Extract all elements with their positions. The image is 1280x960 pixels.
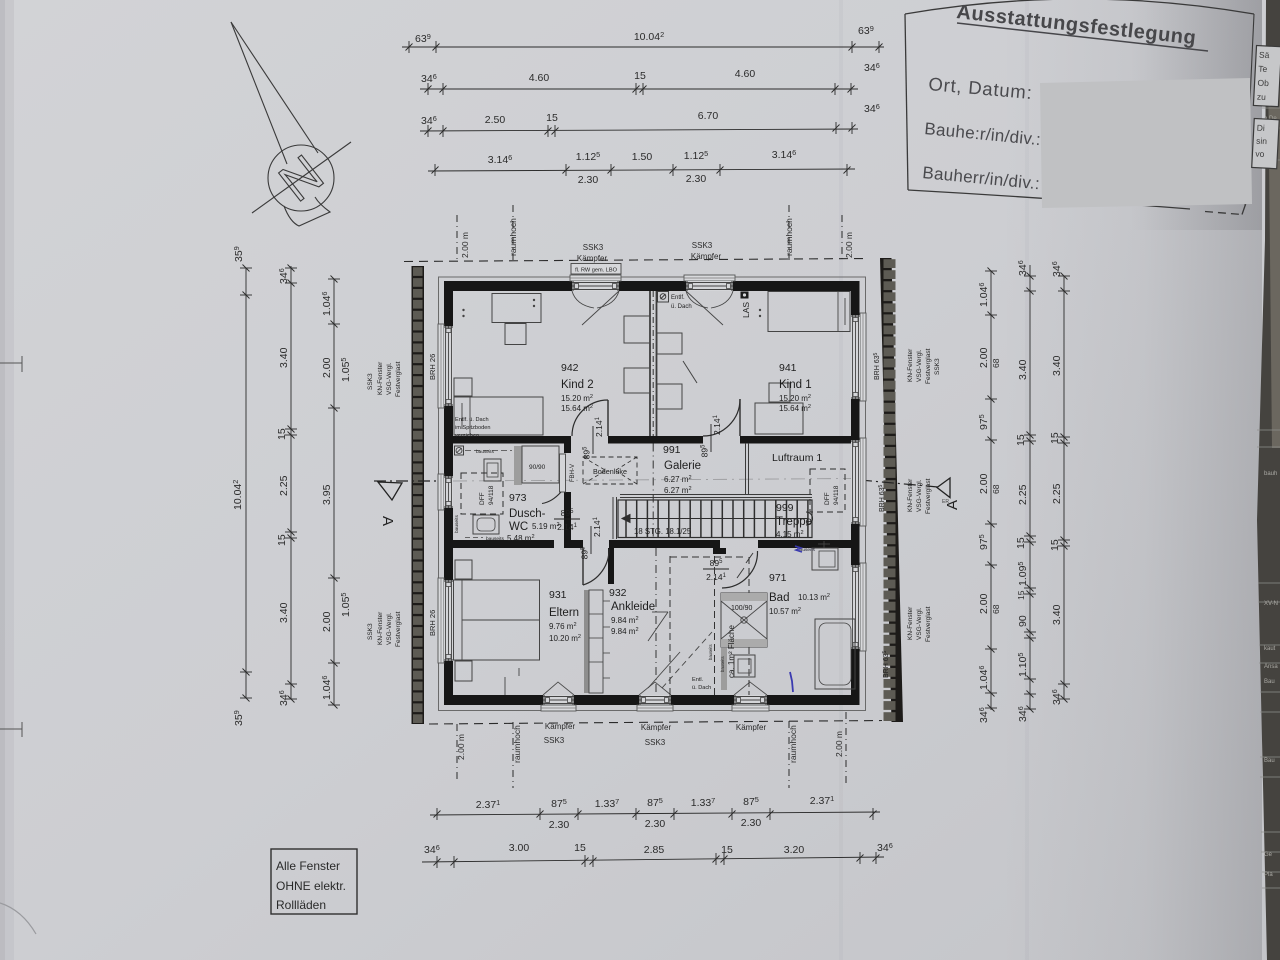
svg-text:Entl.: Entl. [692, 677, 704, 683]
svg-text:Bau: Bau [1264, 679, 1275, 685]
svg-text:15.64 m2: 15.64 m2 [561, 404, 593, 413]
svg-text:18 STG. 18.1/25: 18 STG. 18.1/25 [634, 527, 692, 536]
svg-text:Eltern: Eltern [549, 607, 579, 619]
svg-text:BRH 635: BRH 635 [878, 484, 886, 512]
svg-text:15: 15 [1016, 590, 1026, 600]
svg-text:2.00: 2.00 [978, 593, 990, 614]
svg-text:ü. Dach: ü. Dach [692, 685, 711, 691]
svg-text:4.60: 4.60 [735, 68, 756, 80]
svg-text:2.00: 2.00 [321, 357, 333, 378]
svg-text:3.40: 3.40 [1017, 359, 1029, 380]
svg-text:Festverglast: Festverglast [395, 361, 402, 397]
svg-text:SSK3: SSK3 [583, 243, 604, 252]
svg-text:2.00 m: 2.00 m [834, 731, 844, 757]
svg-text:932: 932 [609, 587, 627, 599]
svg-text:9.76 m2: 9.76 m2 [549, 622, 577, 631]
svg-text:A: A [379, 516, 396, 526]
svg-text:im Spitzboden: im Spitzboden [455, 425, 490, 431]
svg-text:942: 942 [561, 362, 579, 374]
svg-text:2.30: 2.30 [686, 173, 707, 185]
svg-text:90/90: 90/90 [529, 464, 546, 471]
svg-text:VSG-Vergl.: VSG-Vergl. [916, 607, 923, 640]
svg-text:2.85: 2.85 [644, 844, 665, 856]
svg-text:2.30: 2.30 [578, 174, 599, 186]
svg-text:2.25: 2.25 [1051, 483, 1063, 504]
svg-text:931: 931 [549, 589, 567, 601]
svg-text:Ob: Ob [1257, 78, 1269, 89]
svg-text:2.00: 2.00 [978, 473, 990, 494]
svg-text:Ge: Ge [1264, 852, 1273, 858]
svg-text:3.00: 3.00 [509, 842, 530, 854]
svg-text:Festverglast: Festverglast [925, 348, 932, 384]
svg-text:bauseits: bauseits [476, 449, 494, 455]
svg-text:15: 15 [546, 112, 558, 124]
svg-text:Entlf. ü. Dach: Entlf. ü. Dach [455, 417, 489, 423]
svg-text:KN-Fenster: KN-Fenster [907, 606, 914, 640]
svg-text:15.20 m2: 15.20 m2 [561, 394, 593, 403]
svg-text:Festverglast: Festverglast [395, 611, 402, 647]
svg-text:991: 991 [663, 444, 681, 456]
svg-text:VSG-Vergl.: VSG-Vergl. [916, 349, 923, 382]
svg-text:raumhoch: raumhoch [512, 725, 522, 763]
svg-text:15: 15 [721, 844, 733, 856]
svg-text:100/90: 100/90 [731, 605, 753, 612]
svg-text:SSK3: SSK3 [934, 358, 941, 375]
svg-text:Kind 2: Kind 2 [561, 379, 594, 391]
svg-text:68: 68 [991, 358, 1001, 368]
svg-text:4.15 m2: 4.15 m2 [776, 530, 804, 539]
svg-text:sin: sin [1256, 136, 1268, 147]
svg-text:Luftraum 1: Luftraum 1 [772, 452, 822, 464]
svg-text:10.13 m2: 10.13 m2 [798, 593, 830, 602]
svg-text:Rollläden: Rollläden [276, 898, 326, 912]
svg-text:2.25: 2.25 [1017, 484, 1029, 505]
svg-text:raumhoch: raumhoch [784, 218, 794, 256]
svg-text:BRH 635: BRH 635 [873, 352, 881, 380]
svg-text:Te: Te [1258, 64, 1268, 74]
svg-text:10.042: 10.042 [634, 30, 664, 43]
svg-text:6.27 m2: 6.27 m2 [664, 486, 692, 495]
svg-text:2.00 m: 2.00 m [456, 734, 466, 760]
svg-text:6.27 m2: 6.27 m2 [664, 475, 692, 484]
svg-text:15: 15 [1015, 537, 1027, 549]
svg-text:BRH 26: BRH 26 [428, 354, 437, 380]
svg-text:Sä: Sä [1259, 50, 1270, 61]
svg-text:3.95: 3.95 [321, 484, 333, 505]
svg-text:SSK3: SSK3 [692, 241, 713, 250]
svg-text:2.00: 2.00 [978, 347, 990, 368]
svg-text:68: 68 [991, 484, 1001, 494]
svg-text:KN-Fenster: KN-Fenster [907, 348, 914, 382]
svg-text:fl. RW gem. LBO: fl. RW gem. LBO [575, 268, 618, 274]
svg-text:Festverglast: Festverglast [925, 478, 932, 514]
svg-text:15: 15 [574, 842, 586, 854]
svg-text:VSG-Vergl.: VSG-Vergl. [916, 479, 923, 512]
svg-text:971: 971 [769, 572, 787, 584]
svg-text:bauseits: bauseits [708, 644, 713, 660]
svg-text:Kämpfer: Kämpfer [691, 252, 722, 261]
svg-text:SSK3: SSK3 [367, 623, 374, 640]
svg-text:SSK3: SSK3 [367, 373, 374, 390]
svg-text:90: 90 [1017, 615, 1029, 627]
svg-text:15.20 m2: 15.20 m2 [779, 394, 811, 403]
svg-text:15: 15 [276, 428, 288, 440]
svg-text:LAS: LAS [741, 302, 751, 318]
svg-text:10.57 m2: 10.57 m2 [769, 607, 801, 616]
svg-text:ü. Dach: ü. Dach [671, 304, 692, 310]
svg-text:Kämpfer: Kämpfer [545, 722, 576, 731]
svg-text:Kind 1: Kind 1 [779, 379, 812, 391]
svg-text:KN-Fenster: KN-Fenster [377, 361, 384, 395]
svg-text:9.84 m2: 9.84 m2 [611, 627, 639, 636]
svg-text:3.40: 3.40 [278, 347, 290, 368]
svg-text:1.50: 1.50 [632, 151, 653, 163]
svg-text:Ansa: Ansa [1264, 664, 1278, 670]
svg-text:SSK3: SSK3 [645, 738, 666, 747]
svg-text:2.25: 2.25 [278, 475, 290, 496]
svg-text:Entlf.: Entlf. [671, 295, 685, 301]
svg-text:WC: WC [509, 521, 528, 533]
svg-text:vo: vo [1255, 149, 1265, 159]
svg-text:BRH 26: BRH 26 [428, 610, 437, 636]
svg-text:Bau: Bau [1264, 758, 1275, 764]
svg-text:9.84 m2: 9.84 m2 [611, 616, 639, 625]
svg-text:15.64 m2: 15.64 m2 [779, 404, 811, 413]
svg-text:OHNE elektr.: OHNE elektr. [276, 879, 346, 893]
svg-text:Di: Di [1257, 123, 1266, 133]
svg-text:10.042: 10.042 [231, 480, 244, 510]
svg-text:94/118: 94/118 [488, 485, 495, 505]
svg-text:4.60: 4.60 [529, 72, 550, 84]
svg-text:KN-Fenster: KN-Fenster [377, 611, 384, 645]
svg-text:15: 15 [1049, 539, 1061, 551]
svg-text:BRH 635: BRH 635 [882, 650, 890, 678]
svg-text:2.00 m: 2.00 m [460, 232, 470, 258]
svg-text:raumhoch: raumhoch [788, 725, 798, 763]
svg-text:2.30: 2.30 [645, 818, 666, 830]
svg-text:zu: zu [1257, 92, 1267, 102]
svg-text:VSG-Vergl.: VSG-Vergl. [386, 362, 393, 395]
svg-text:2.30: 2.30 [549, 819, 570, 831]
svg-text:DFF: DFF [824, 492, 831, 505]
svg-text:Alle Fenster: Alle Fenster [276, 859, 340, 873]
svg-text:DFF: DFF [479, 492, 486, 505]
svg-text:2.00 m: 2.00 m [844, 232, 854, 258]
svg-text:5.48 m2: 5.48 m2 [507, 534, 535, 543]
svg-text:XV-N: XV-N [1264, 601, 1278, 607]
svg-text:SSK3: SSK3 [544, 736, 565, 745]
svg-text:3.40: 3.40 [1051, 355, 1063, 376]
svg-text:bauseits: bauseits [454, 515, 460, 533]
svg-text:3.20: 3.20 [784, 844, 805, 856]
svg-text:15: 15 [1015, 434, 1027, 446]
svg-text:Pla: Pla [1264, 872, 1273, 878]
svg-text:bauseits: bauseits [720, 656, 725, 672]
svg-text:3.40: 3.40 [278, 602, 290, 623]
svg-text:999: 999 [776, 502, 794, 514]
svg-text:Bodenluke: Bodenluke [593, 467, 627, 476]
svg-text:3.40: 3.40 [1051, 604, 1063, 625]
svg-text:raumhoch: raumhoch [508, 218, 518, 256]
svg-text:2.50: 2.50 [485, 114, 506, 126]
svg-text:verziehen: verziehen [455, 433, 479, 439]
svg-text:ER: ER [942, 499, 949, 505]
svg-text:10.20 m2: 10.20 m2 [549, 634, 581, 643]
svg-text:Dusch-: Dusch- [509, 508, 546, 520]
svg-text:15: 15 [276, 534, 288, 546]
svg-text:FBH-V: FBH-V [570, 464, 576, 482]
svg-text:bauh: bauh [1264, 471, 1277, 477]
svg-text:ca. 1m² Fläche: ca. 1m² Fläche [727, 625, 736, 678]
svg-text:15: 15 [634, 70, 646, 82]
svg-text:973: 973 [509, 492, 527, 504]
svg-text:941: 941 [779, 362, 797, 374]
svg-text:bauseits: bauseits [486, 536, 504, 542]
svg-text:Kämpfer: Kämpfer [736, 723, 767, 732]
svg-text:5.19 m2: 5.19 m2 [532, 522, 560, 531]
svg-text:15: 15 [1049, 432, 1061, 444]
svg-text:Treppe: Treppe [776, 516, 812, 528]
svg-text:94/118: 94/118 [833, 485, 840, 505]
svg-text:KN-Fenster: KN-Fenster [907, 478, 914, 512]
svg-text:68: 68 [991, 604, 1001, 614]
svg-text:Bad: Bad [769, 592, 789, 604]
svg-text:2.00: 2.00 [321, 611, 333, 632]
svg-text:Kämpfer: Kämpfer [641, 723, 672, 732]
svg-text:Galerie: Galerie [664, 460, 701, 472]
svg-text:Ankleide: Ankleide [611, 601, 655, 613]
svg-text:6.70: 6.70 [698, 110, 719, 122]
svg-text:kaut: kaut [1264, 646, 1276, 652]
svg-text:2.30: 2.30 [741, 817, 762, 829]
svg-text:Kämpfer: Kämpfer [577, 254, 608, 263]
svg-text:VSG-Vergl.: VSG-Vergl. [386, 612, 393, 645]
svg-text:Festverglast: Festverglast [925, 606, 932, 642]
